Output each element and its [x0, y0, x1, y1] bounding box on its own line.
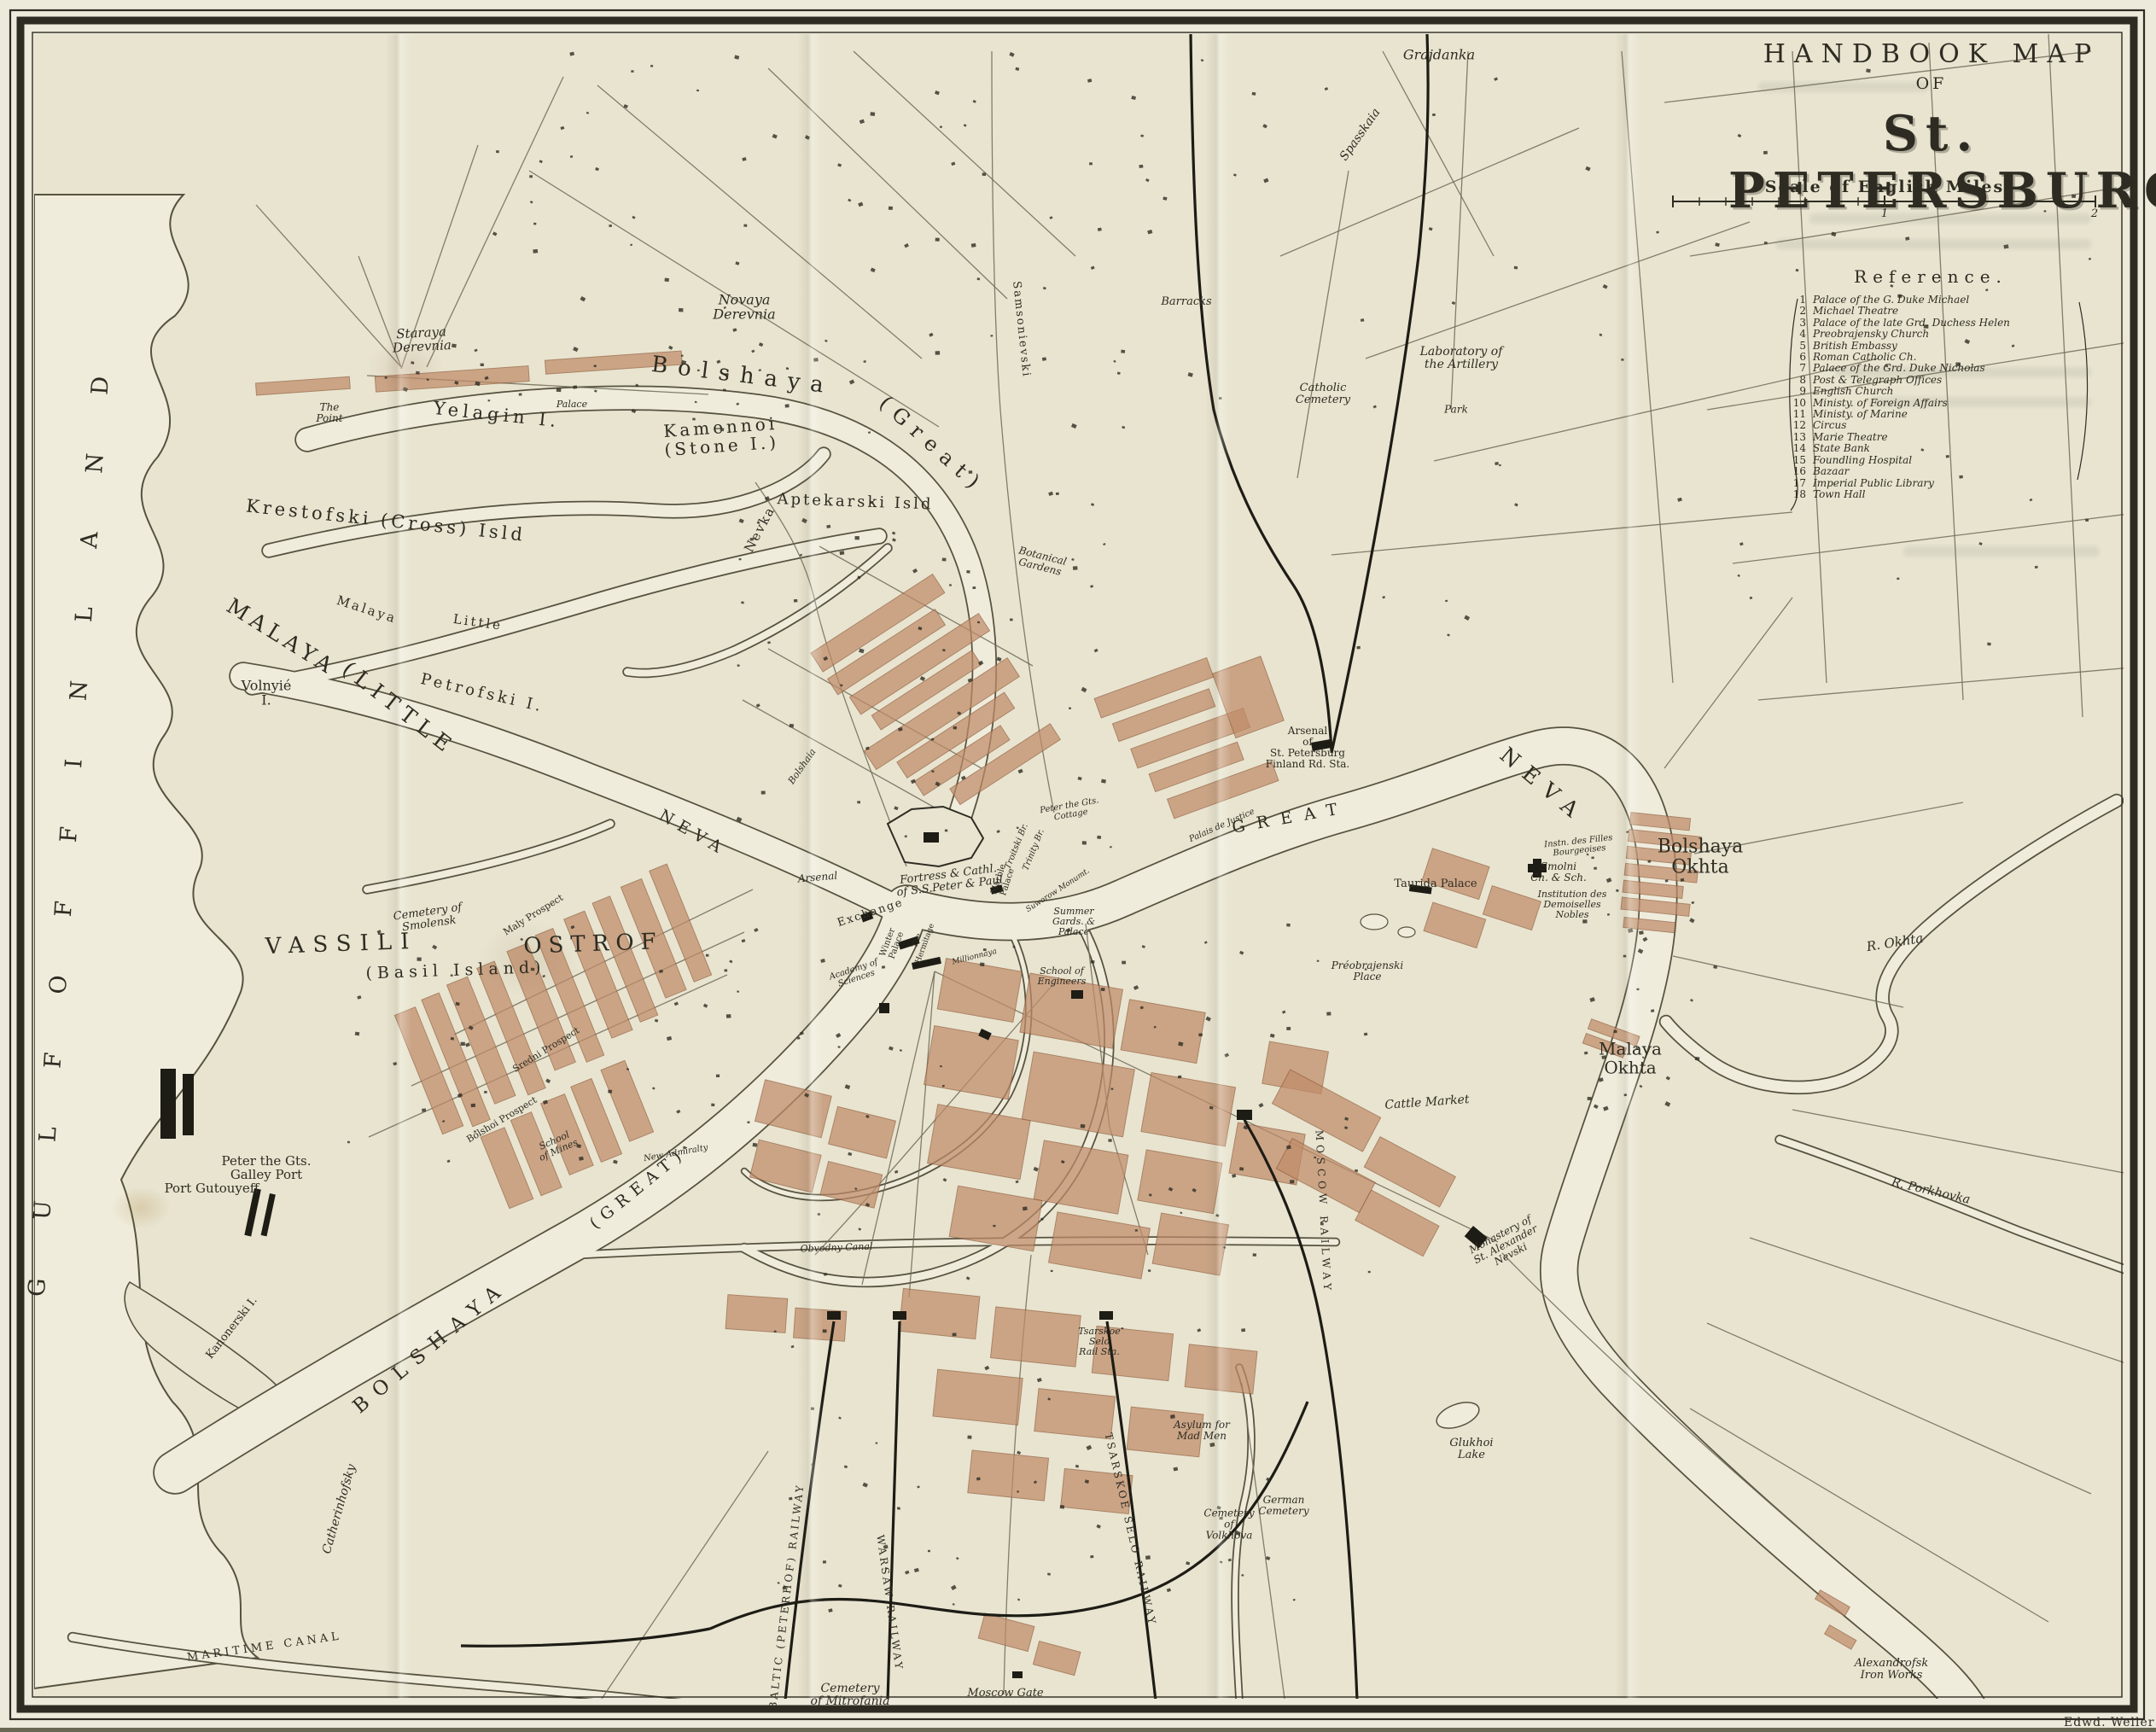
reference-item-label: Imperial Public Library	[1813, 478, 1934, 489]
reference-item: 16Bazaar	[1786, 466, 2076, 477]
reference-item-number: 8	[1786, 375, 1813, 386]
reference-item-label: Palace of the Grd. Duke Nicholas	[1813, 363, 1985, 374]
reference-item-label: Marie Theatre	[1813, 432, 1888, 443]
reference-item-number: 15	[1786, 455, 1813, 466]
scale-mile-2: 2	[2091, 207, 2098, 220]
reference-item-number: 4	[1786, 329, 1813, 340]
reference-item-label: Preobrajensky Church	[1813, 329, 1929, 340]
reference-item-label: Post & Telegraph Offices	[1813, 375, 1942, 386]
reference-item-label: Roman Catholic Ch.	[1813, 352, 1916, 363]
reference-item-label: State Bank	[1813, 443, 1870, 454]
scale-caption: Scale of English Miles	[1765, 178, 2004, 196]
reference-item: 14State Bank	[1786, 443, 2076, 454]
reference-item-number: 10	[1786, 398, 1813, 409]
reference-item-number: 16	[1786, 466, 1813, 477]
reference-item: 17Imperial Public Library	[1786, 478, 2076, 489]
reference-item-label: Michael Theatre	[1813, 306, 1898, 317]
reference-item-label: Palace of the G. Duke Michael	[1813, 294, 1969, 306]
reference-item-number: 1	[1786, 294, 1813, 306]
reference-item-label: Palace of the late Grd. Duchess Helen	[1813, 318, 2010, 329]
reference-item-label: Bazaar	[1813, 466, 1849, 477]
reference-item-number: 9	[1786, 386, 1813, 397]
reference-item-number: 14	[1786, 443, 1813, 454]
reference-item-number: 11	[1786, 409, 1813, 420]
reference-item: 3Palace of the late Grd. Duchess Helen	[1786, 318, 2076, 329]
reference-item: 4Preobrajensky Church	[1786, 329, 2076, 340]
reference-item: 12Circus	[1786, 420, 2076, 431]
map-art	[0, 0, 2156, 1732]
engraver-credit: Edwd. Weller	[2064, 1716, 2155, 1729]
reference-item-label: Ministy. of Foreign Affairs	[1813, 398, 1948, 409]
reference-item-number: 6	[1786, 352, 1813, 363]
reference-item: 2Michael Theatre	[1786, 306, 2076, 317]
reference-item-label: Town Hall	[1813, 489, 1865, 500]
reference-item-label: Ministy. of Marine	[1813, 409, 1908, 420]
reference-item: 18Town Hall	[1786, 489, 2076, 500]
reference-item: 5British Embassy	[1786, 341, 2076, 352]
reference-heading: Reference.	[1786, 266, 2076, 287]
reference-item: 7Palace of the Grd. Duke Nicholas	[1786, 363, 2076, 374]
reference-item: 15Foundling Hospital	[1786, 455, 2076, 466]
reference-item-number: 13	[1786, 432, 1813, 443]
reference-item-label: English Church	[1813, 386, 1893, 397]
reference-item: 10Ministy. of Foreign Affairs	[1786, 398, 2076, 409]
reference-item-number: 7	[1786, 363, 1813, 374]
reference-item: 11Ministy. of Marine	[1786, 409, 2076, 420]
reference-item-label: British Embassy	[1813, 341, 1897, 352]
scale-mile-1: 1	[1881, 207, 1888, 220]
reference-item: 13Marie Theatre	[1786, 432, 2076, 443]
railways-layer	[461, 32, 1428, 1700]
reference-list: 1Palace of the G. Duke Michael2Michael T…	[1786, 294, 2076, 500]
reference-item-number: 18	[1786, 489, 1813, 500]
reference-item-number: 3	[1786, 318, 1813, 329]
reference-item-number: 2	[1786, 306, 1813, 317]
map-page: HANDBOOK MAP OF St. PETERSBURG. Scale of…	[0, 0, 2156, 1732]
reference-item-number: 12	[1786, 420, 1813, 431]
reference-item-number: 5	[1786, 341, 1813, 352]
reference-item: 6Roman Catholic Ch.	[1786, 352, 2076, 363]
reference-item: 8Post & Telegraph Offices	[1786, 375, 2076, 386]
reference-legend: Reference. 1Palace of the G. Duke Michae…	[1786, 266, 2076, 500]
reference-item: 9English Church	[1786, 386, 2076, 397]
reference-item: 1Palace of the G. Duke Michael	[1786, 294, 2076, 306]
reference-item-label: Foundling Hospital	[1813, 455, 1912, 466]
reference-item-label: Circus	[1813, 420, 1846, 431]
reference-item-number: 17	[1786, 478, 1813, 489]
